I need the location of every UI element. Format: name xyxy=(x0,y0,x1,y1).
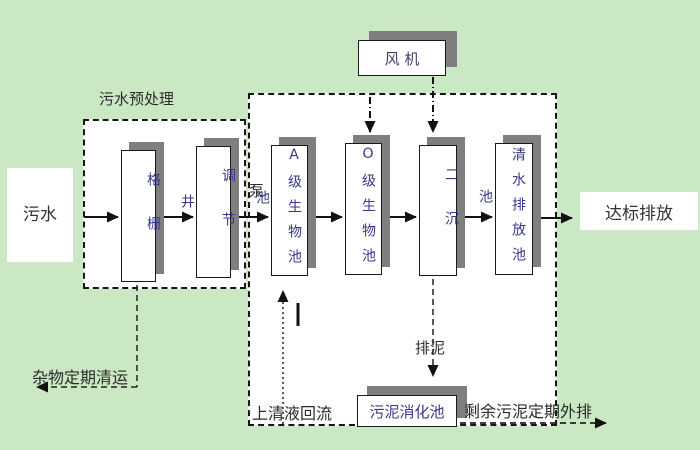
effluent-label: 达标排放 xyxy=(605,199,673,224)
pretreatment-group-label: 污水预处理 xyxy=(99,88,174,109)
grid-well-tank: 格栅井 xyxy=(121,150,156,282)
a-stage-bio-tank: A级生物池 xyxy=(271,145,308,276)
fan-label: 风 机 xyxy=(385,48,420,69)
effluent-node: 达标排放 xyxy=(580,192,698,230)
sludge-digester-label: 污泥消化池 xyxy=(369,401,444,422)
influent-node: 污水 xyxy=(7,168,73,262)
process-flow-diagram: { "diagram": { "title": "sewage treatmen… xyxy=(0,0,700,450)
excess-sludge-out-label: 剩余污泥定期外排 xyxy=(464,398,592,422)
clear-water-discharge-tank: 清水排放池 xyxy=(495,143,533,275)
influent-label: 污水 xyxy=(23,200,57,225)
pump-label: 泵 xyxy=(249,180,264,201)
regulating-tank: 调节池 xyxy=(196,146,231,278)
sludge-discharge-label: 排泥 xyxy=(415,337,445,358)
sludge-digester-node: 污泥消化池 xyxy=(357,395,457,427)
supernatant-return-label: 上清液回流 xyxy=(252,400,332,424)
fan-node: 风 机 xyxy=(358,40,446,76)
secondary-clarifier-tank: 二沉池 xyxy=(419,145,457,276)
o-stage-bio-tank: O级生物池 xyxy=(345,143,382,275)
debris-removal-label: 杂物定期清运 xyxy=(32,364,128,388)
